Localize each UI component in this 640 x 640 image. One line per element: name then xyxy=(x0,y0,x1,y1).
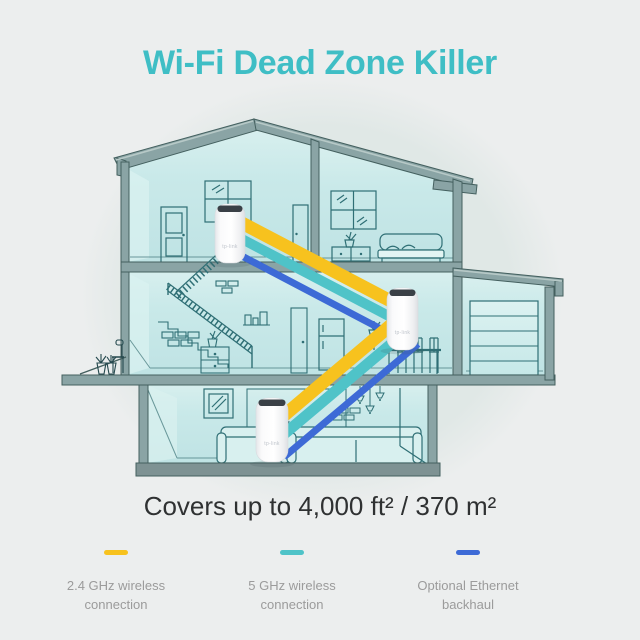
garage-door xyxy=(470,301,538,375)
legend-item-5ghz: 5 GHz wireless connection xyxy=(204,550,380,615)
legend-label-ethernet: Optional Ethernet backhaul xyxy=(393,577,543,615)
garage-roof-cap xyxy=(555,281,563,296)
middle-floor-slab xyxy=(62,375,555,385)
deco-brand-label: tp-link xyxy=(222,244,238,250)
right-wall-beam xyxy=(453,179,462,380)
coverage-text: Covers up to 4,000 ft² / 370 m² xyxy=(0,491,640,522)
legend-dash-5ghz xyxy=(280,550,304,555)
gable-wall-beam xyxy=(311,139,319,262)
garage-right-wall xyxy=(545,287,554,380)
legend-item-ethernet: Optional Ethernet backhaul xyxy=(380,550,556,615)
legend-item-24ghz: 2.4 GHz wireless connection xyxy=(28,550,204,615)
ground-left-wall xyxy=(139,385,148,463)
legend-label-5ghz: 5 GHz wireless connection xyxy=(217,577,367,615)
page-background: tp-link tp-link tp-link Wi-Fi Dead Zone … xyxy=(0,0,640,640)
large-sofa xyxy=(287,427,422,463)
deco-brand-label: tp-link xyxy=(395,330,411,336)
legend: 2.4 GHz wireless connection5 GHz wireles… xyxy=(28,550,556,615)
legend-label-24ghz: 2.4 GHz wireless connection xyxy=(41,577,191,615)
legend-dash-24ghz xyxy=(104,550,128,555)
legend-dash-ethernet xyxy=(456,550,480,555)
house-illustration: tp-link tp-link tp-link xyxy=(0,0,640,640)
main-title: Wi-Fi Dead Zone Killer xyxy=(0,44,640,83)
ground-right-wall xyxy=(428,385,437,463)
deco-brand-label: tp-link xyxy=(264,441,280,447)
